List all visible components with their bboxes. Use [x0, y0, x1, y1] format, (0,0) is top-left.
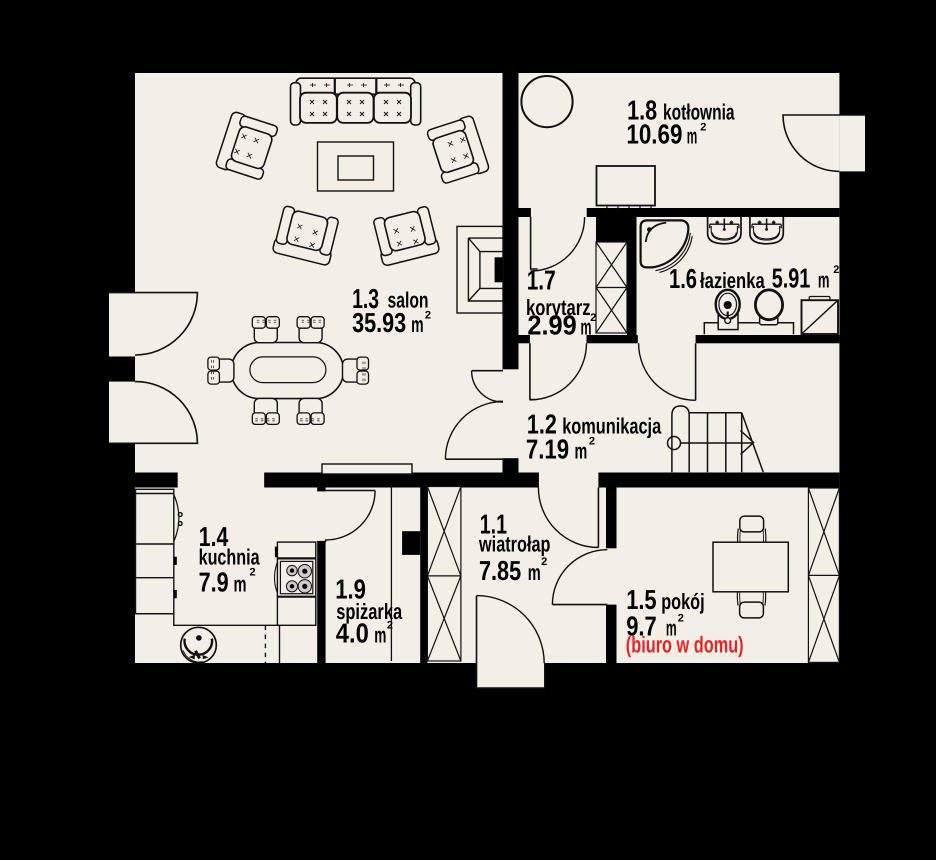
- svg-text:5.91: 5.91: [772, 263, 811, 294]
- svg-text:2: 2: [678, 613, 684, 625]
- svg-text:2: 2: [590, 312, 596, 324]
- svg-text:m: m: [818, 268, 830, 293]
- svg-text:35.93: 35.93: [352, 307, 406, 338]
- svg-text:(biuro w domu): (biuro w domu): [626, 632, 744, 658]
- svg-text:10.69: 10.69: [626, 119, 682, 150]
- svg-text:2: 2: [700, 122, 706, 134]
- svg-text:m: m: [411, 312, 424, 337]
- svg-text:7.9: 7.9: [199, 567, 229, 598]
- svg-text:wiatrołap: wiatrołap: [478, 531, 550, 556]
- svg-text:pokój: pokój: [661, 589, 704, 614]
- svg-text:2: 2: [250, 567, 256, 579]
- svg-text:4.0: 4.0: [336, 617, 369, 648]
- svg-text:m: m: [575, 438, 588, 463]
- svg-text:2: 2: [589, 436, 595, 448]
- svg-text:łazienka: łazienka: [700, 268, 765, 293]
- svg-text:2: 2: [833, 264, 839, 276]
- svg-text:2.99: 2.99: [527, 310, 576, 341]
- svg-text:m: m: [687, 124, 698, 149]
- svg-text:7.19: 7.19: [526, 433, 569, 464]
- svg-text:m: m: [528, 560, 541, 585]
- svg-text:komunikacja: komunikacja: [562, 413, 662, 438]
- svg-text:7.85: 7.85: [479, 555, 521, 586]
- svg-text:m: m: [374, 622, 386, 647]
- svg-text:2: 2: [425, 310, 431, 322]
- svg-text:2: 2: [541, 556, 547, 568]
- svg-text:m: m: [234, 572, 247, 597]
- svg-text:1.6: 1.6: [669, 263, 697, 294]
- svg-text:2: 2: [387, 620, 393, 632]
- svg-text:1.7: 1.7: [527, 265, 556, 296]
